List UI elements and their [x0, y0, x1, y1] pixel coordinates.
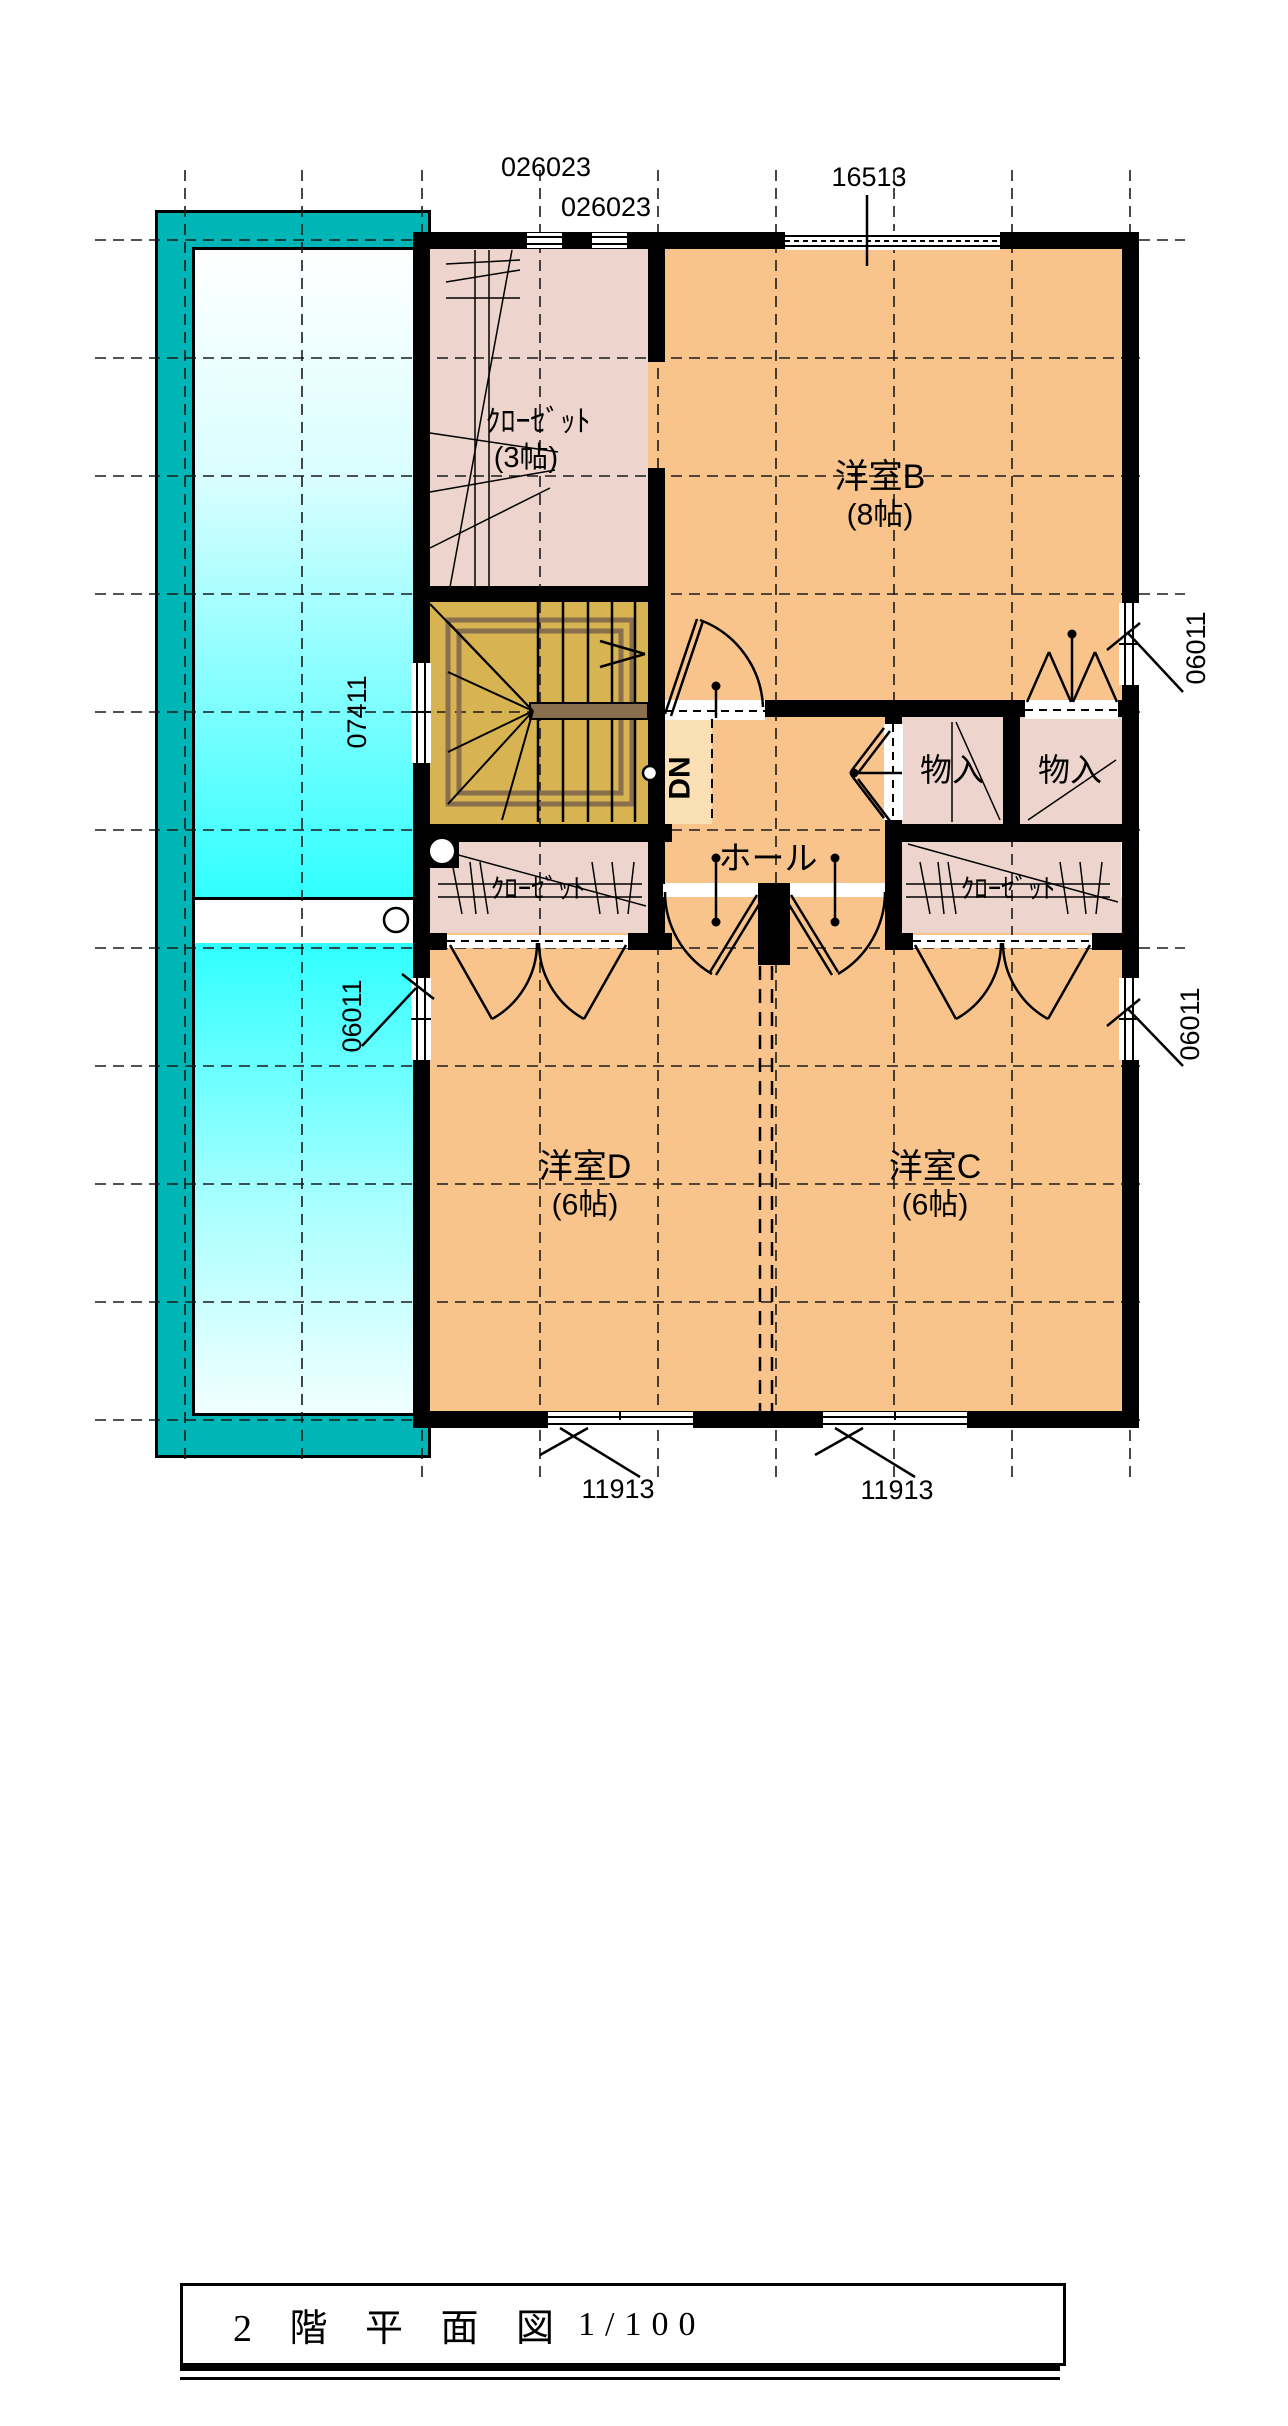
stair-dn-label: DN [664, 756, 696, 799]
closet-c-name: ｸﾛｰｾﾞｯﾄ [961, 875, 1056, 903]
storage-right-name: 物入 [1038, 754, 1102, 788]
closet-b-size: (3帖) [494, 443, 558, 473]
hall-name: ホール [719, 842, 818, 877]
closet-b-name: ｸﾛｰｾﾞｯﾄ [486, 406, 591, 438]
door-hall-d [665, 892, 763, 975]
drawing-scale: 1/100 [578, 2286, 705, 2363]
dim-bottom-right: 11913 [860, 1476, 933, 1504]
plan-detail-layer [0, 0, 1288, 2426]
dim-left-room-d: 06011 [338, 979, 366, 1052]
doors-closet-d [450, 943, 626, 1019]
balcony-strip-circle [384, 908, 408, 932]
doors-closet-c [915, 943, 1090, 1019]
dim-top-left-1: 026023 [501, 153, 591, 181]
storage-left-name: 物入 [920, 754, 984, 788]
door-storage-left-folding [852, 728, 902, 821]
stair-newel-circle [643, 766, 657, 780]
door-storage-right-folding [1027, 632, 1117, 702]
dim-left-balcony: 07411 [343, 675, 371, 748]
closet-d-name: ｸﾛｰｾﾞｯﾄ [491, 875, 586, 903]
dim-right-room-b: 06011 [1182, 611, 1210, 684]
title-block-rule-2 [180, 2377, 1060, 2380]
dimension-leaders [362, 195, 1183, 1477]
room-d-name: 洋室D [539, 1150, 632, 1186]
dim-top-left-2: 026023 [561, 193, 651, 221]
room-b-name: 洋室B [835, 460, 926, 496]
door-room-b [665, 619, 763, 718]
dim-bottom-left: 11913 [581, 1475, 654, 1503]
dim-right-room-c: 06011 [1176, 987, 1204, 1060]
room-d-size: (6帖) [552, 1189, 619, 1221]
stair-winders [430, 604, 533, 820]
title-block-rule-1 [180, 2366, 1060, 2371]
room-c-size: (6帖) [902, 1189, 969, 1221]
room-c-name: 洋室C [889, 1150, 982, 1186]
floor-plan-page: 026023 026023 16513 ｸﾛｰｾﾞｯﾄ (3帖) 洋室B (8帖… [0, 0, 1288, 2426]
dim-top-right: 16513 [831, 163, 906, 191]
title-block: 2 階 平 面 図 1/100 [180, 2283, 1066, 2366]
column-marker [426, 835, 459, 868]
stair-center-rail [530, 703, 648, 719]
drawing-title: 2 階 平 面 図 [233, 2286, 568, 2363]
room-b-size: (8帖) [847, 499, 914, 531]
